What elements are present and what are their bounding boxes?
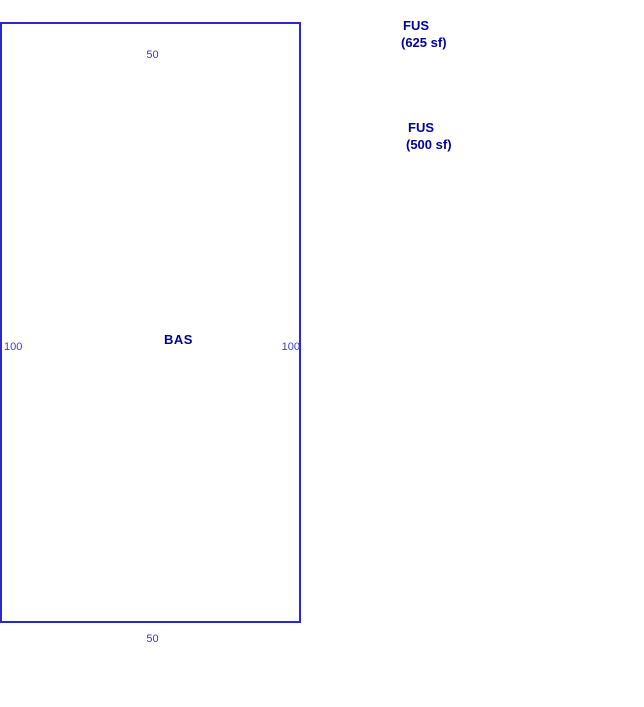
dimension-label-right: 100	[2, 341, 300, 354]
bas-area-outline[interactable]: 50 50 100 100	[0, 22, 301, 623]
fus-annotation-1-label: FUS	[401, 17, 447, 34]
fus-annotation-1: FUS (625 sf)	[401, 17, 447, 51]
bas-area-label: BAS	[164, 332, 193, 347]
dimension-label-bottom: 50	[2, 633, 303, 646]
fus-annotation-2-area: (500 sf)	[406, 136, 452, 153]
fus-annotation-2: FUS (500 sf)	[406, 119, 452, 153]
fus-annotation-1-area: (625 sf)	[401, 34, 447, 51]
sketch-canvas: 50 50 100 100 BAS FUS (625 sf) FUS (500 …	[0, 0, 644, 707]
dimension-label-top: 50	[2, 49, 303, 62]
fus-annotation-2-label: FUS	[406, 119, 452, 136]
